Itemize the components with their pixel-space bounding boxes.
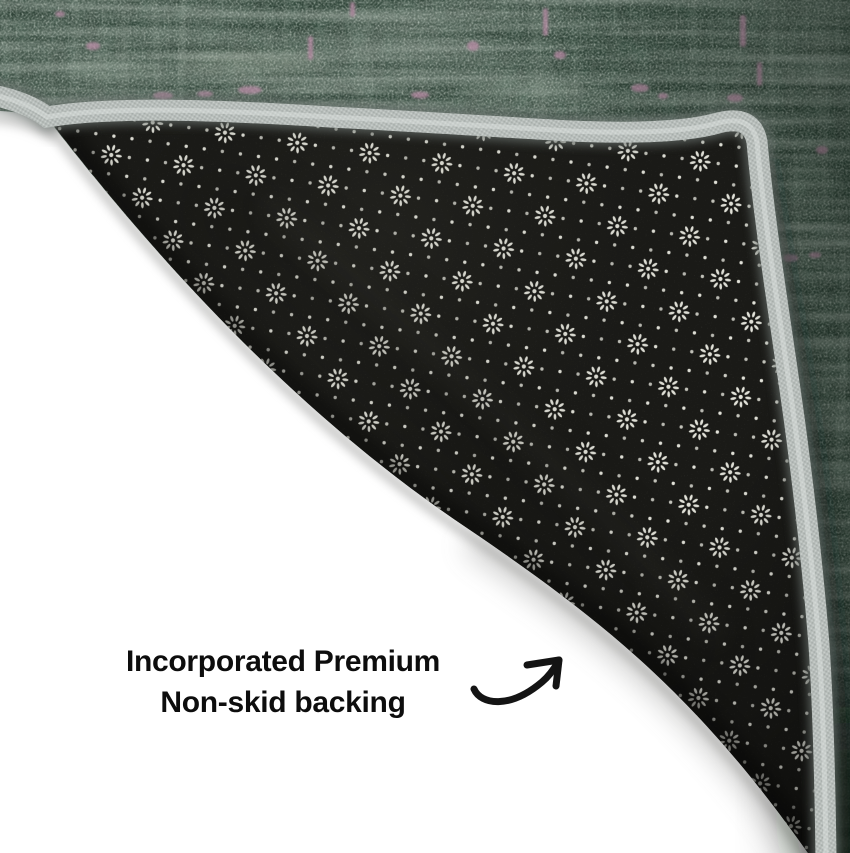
caption-line-1: Incorporated Premium	[108, 641, 458, 682]
product-photo-stage: Incorporated Premium Non-skid backing	[0, 0, 850, 853]
caption-line-2: Non-skid backing	[108, 682, 458, 723]
rug-product-photo	[0, 0, 850, 853]
caption: Incorporated Premium Non-skid backing	[108, 641, 458, 723]
